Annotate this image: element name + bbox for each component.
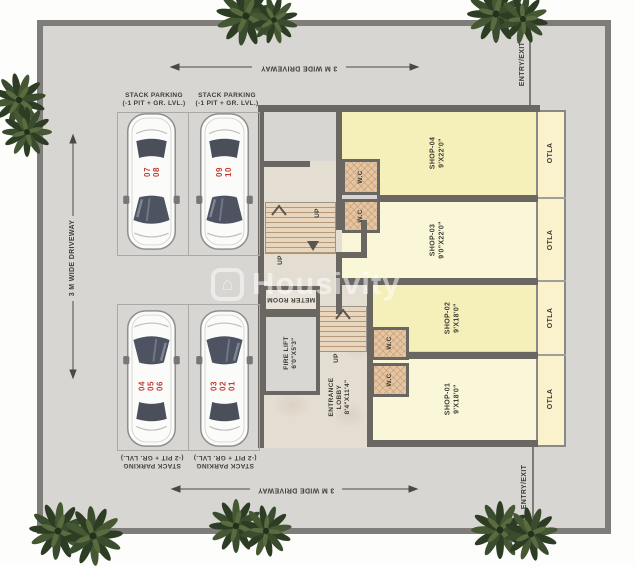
wall-landing-top — [258, 161, 310, 167]
driveway-label-left: 3 M WIDE DRIVEWAY — [69, 220, 78, 296]
wall-shops34-left — [336, 105, 342, 230]
watermark-brand: Housivity — [252, 266, 401, 302]
staircase-upper — [265, 202, 336, 254]
wc-label-shop-02: W.C — [386, 336, 394, 349]
parking-bay-top-left — [117, 112, 189, 256]
otla-label-04: OTLA — [547, 143, 556, 163]
wall-divider-shop12 — [406, 352, 538, 359]
wall-shops12-left — [367, 285, 373, 447]
car-3-stack-numbers: 040506 — [138, 381, 165, 391]
driveway-label-top: 3 M WIDE DRIVEWAY — [261, 63, 337, 72]
up-label-stairs-mid: UP — [277, 255, 285, 265]
up-label-stairs-upper: UP — [314, 208, 322, 218]
entrance-lobby-label: ENTRANCELOBBY8'4"X11'4" — [328, 378, 352, 417]
fire-lift-label: FIRE LIFT6'0"X5'3" — [283, 336, 299, 369]
open-recess — [264, 112, 336, 161]
stack-parking-label-top-1: STACK PARKING(-1 PIT + GR. LVL.) — [122, 92, 185, 108]
wall-divider-shop34 — [377, 195, 538, 202]
up-label-stairs-lower: UP — [333, 353, 341, 363]
shop-03-label: SHOP-039'0"X22'0" — [430, 221, 447, 259]
driveway-label-bottom: 3 M WIDE DRIVEWAY — [258, 485, 334, 494]
stack-parking-label-top-2: STACK PARKING(-1 PIT + GR. LVL.) — [195, 92, 258, 108]
car-4-stack-numbers: 030201 — [210, 381, 237, 391]
wc-label-shop-04: W.C — [357, 170, 365, 183]
shop-02-label: SHOP-029'X18'0" — [445, 302, 462, 334]
wc-label-shop-03: W.C — [357, 209, 365, 222]
floor-plan-canvas: 0708 0910 040506 030201 3 M WIDE DRIVEWA — [0, 0, 635, 566]
building-wall-top — [259, 105, 540, 112]
otla-label-02: OTLA — [547, 308, 556, 328]
otla-label-03: OTLA — [547, 230, 556, 250]
shop-04-label: SHOP-049'X22'0" — [430, 137, 447, 169]
car-1-stack-numbers: 0708 — [143, 167, 161, 177]
entry-exit-label-bottom: ENTRY/EXIT — [521, 465, 530, 509]
house-icon: ⌂ — [211, 268, 244, 301]
parking-bay-bottom-right — [188, 304, 260, 451]
shop-01-label: SHOP-019'X18'0" — [445, 383, 462, 415]
otla-label-01: OTLA — [547, 389, 556, 409]
entry-exit-label-top: ENTRY/EXIT — [519, 42, 528, 86]
car-2-stack-numbers: 0910 — [215, 167, 233, 177]
stack-parking-label-bottom-2: STACK PARKING(-2 PIT + GR. LVL.) — [193, 453, 256, 469]
staircase-lower — [318, 306, 367, 352]
parking-bay-top-right — [188, 112, 260, 256]
parking-bay-bottom-left — [117, 304, 189, 451]
wc-label-shop-01: W.C — [386, 373, 394, 386]
stack-parking-label-bottom-1: STACK PARKING(-2 PIT + GR. LVL.) — [120, 453, 183, 469]
building-wall-bottom — [367, 440, 538, 447]
